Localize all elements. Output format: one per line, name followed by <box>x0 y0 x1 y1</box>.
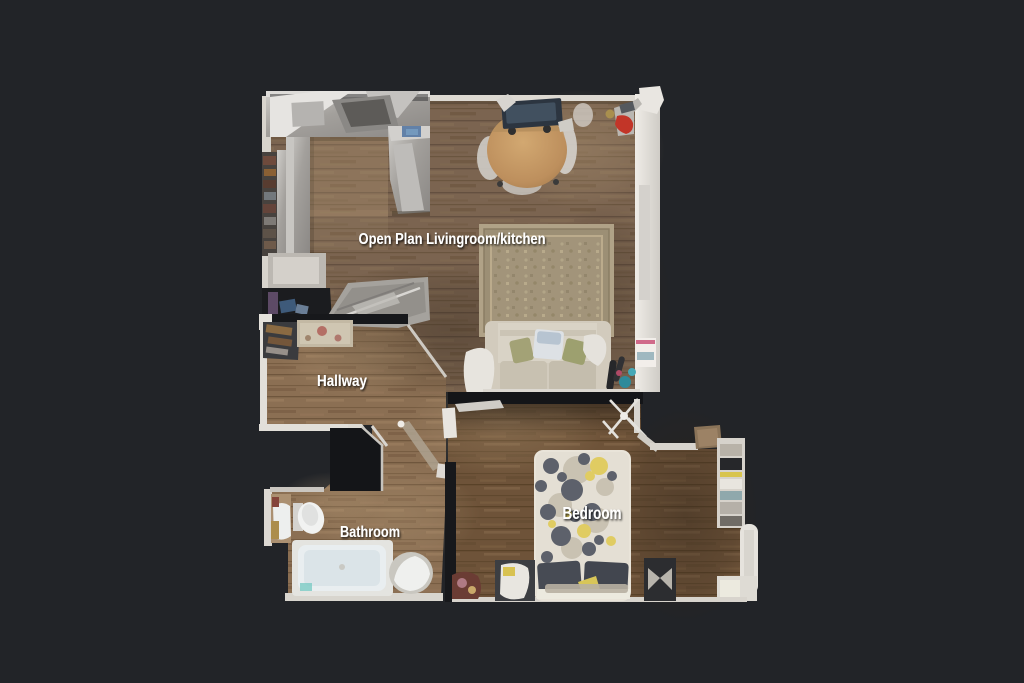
svg-text:Bedroom: Bedroom <box>563 503 622 523</box>
svg-text:Hallway: Hallway <box>317 373 367 390</box>
svg-text:Bathroom: Bathroom <box>340 524 400 541</box>
svg-text:Open Plan Livingroom/kitchen: Open Plan Livingroom/kitchen <box>359 231 546 248</box>
